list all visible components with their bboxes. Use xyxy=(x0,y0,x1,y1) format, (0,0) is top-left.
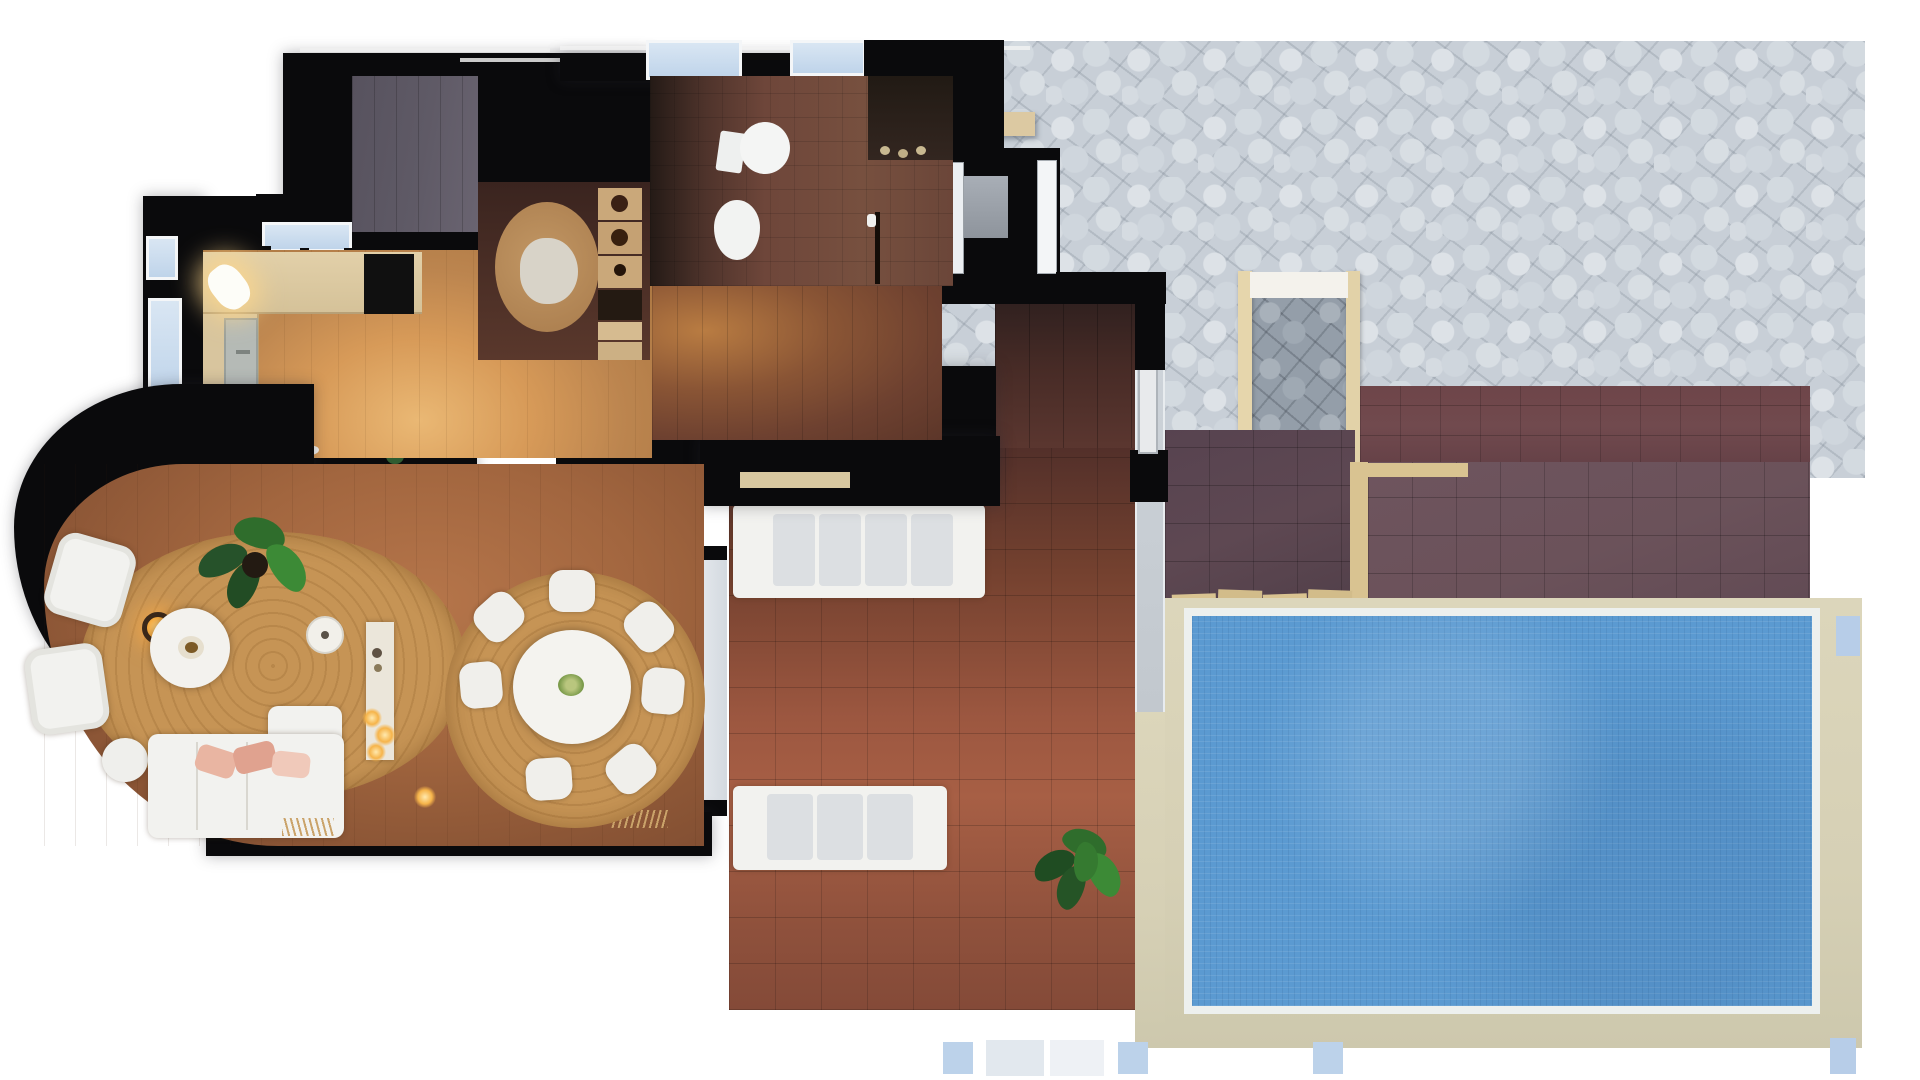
window-north-1 xyxy=(646,40,742,80)
window-wall-cap-top xyxy=(701,546,727,560)
sofa-cushion xyxy=(773,514,815,586)
floor-candle xyxy=(366,742,386,762)
dining-chair xyxy=(525,756,574,801)
cooktop xyxy=(364,254,414,314)
pool-deck-left-strip xyxy=(1135,700,1165,1048)
toilet-bowl xyxy=(740,122,790,174)
shelf-cell xyxy=(598,322,642,340)
white-door-right xyxy=(1037,160,1057,274)
fence-post xyxy=(1313,1042,1343,1074)
window-wall xyxy=(701,556,727,804)
window-north-2 xyxy=(790,40,866,76)
pillar xyxy=(1130,450,1168,502)
gate-lintel xyxy=(1250,272,1348,298)
shelf-bowl xyxy=(611,229,628,246)
brick-terrace-band xyxy=(1360,386,1810,466)
living-plant xyxy=(190,512,322,614)
step-edging-right xyxy=(1350,462,1368,612)
white-door-veranda xyxy=(1138,362,1158,454)
pendant-lamp-center xyxy=(321,631,329,639)
steps-upper xyxy=(1165,430,1355,600)
lintel-timber xyxy=(740,472,850,488)
wall-above-walkway xyxy=(1135,300,1165,370)
table-centerpiece xyxy=(558,674,584,696)
ottoman xyxy=(102,738,148,782)
step-edging-top xyxy=(1363,463,1468,477)
wall-window-gap xyxy=(256,194,288,224)
sofa-cushion xyxy=(867,794,913,860)
bathroom-door-handle xyxy=(867,214,876,227)
wall-hall-south-right xyxy=(700,436,1000,506)
shelf-unit xyxy=(598,188,650,360)
steps-lower xyxy=(1368,462,1810,612)
sofa-cushion xyxy=(767,794,813,860)
roof-slate-block xyxy=(352,76,478,232)
deck-panel xyxy=(986,1040,1044,1076)
wall-northeast-c xyxy=(976,40,1004,152)
sofa-cushion xyxy=(865,514,907,586)
outdoor-sofa-top xyxy=(733,504,985,598)
fence-post xyxy=(1118,1042,1148,1074)
console-item xyxy=(372,648,382,658)
outdoor-sofa-bottom xyxy=(733,786,947,870)
sofa-cushion xyxy=(911,514,953,586)
dining-chair xyxy=(549,570,595,612)
window-west-2 xyxy=(148,298,182,398)
deck-panel xyxy=(1050,1040,1104,1076)
shelf-bowl xyxy=(614,264,626,276)
console-item xyxy=(374,664,382,672)
sofa-cushion xyxy=(819,514,861,586)
vanity-bottle xyxy=(898,149,908,158)
floorplan-canvas xyxy=(0,0,1920,1080)
pool-water xyxy=(1192,616,1812,1006)
veranda-plant xyxy=(1022,822,1132,912)
hallway-floor xyxy=(652,284,942,440)
fence-post xyxy=(1830,1038,1856,1074)
sofa-cushion xyxy=(817,794,863,860)
wall-highlight xyxy=(300,48,550,52)
wall-northeast-a xyxy=(864,40,976,80)
shelf-bowl xyxy=(611,195,628,212)
fence-post xyxy=(1836,616,1860,656)
coffee-table-food xyxy=(185,642,198,653)
blush-pillow xyxy=(271,750,311,779)
kitchen-sink xyxy=(224,318,258,392)
dining-chair xyxy=(458,660,504,709)
veranda-shaded-strip xyxy=(995,298,1135,453)
dining-chair xyxy=(640,666,686,715)
sink-faucet xyxy=(236,350,250,354)
fence-post xyxy=(943,1042,973,1074)
vanity-bottle xyxy=(880,146,890,155)
plant-pot xyxy=(242,552,268,578)
shelf-cell xyxy=(598,290,642,320)
rattan-chair-cushion xyxy=(520,238,578,304)
armchair xyxy=(22,641,111,737)
shelf-cell xyxy=(598,342,642,360)
grass-decor xyxy=(282,818,334,836)
floor-candle xyxy=(414,786,436,808)
window-west-1 xyxy=(146,236,178,280)
vanity-bottle xyxy=(916,146,926,155)
